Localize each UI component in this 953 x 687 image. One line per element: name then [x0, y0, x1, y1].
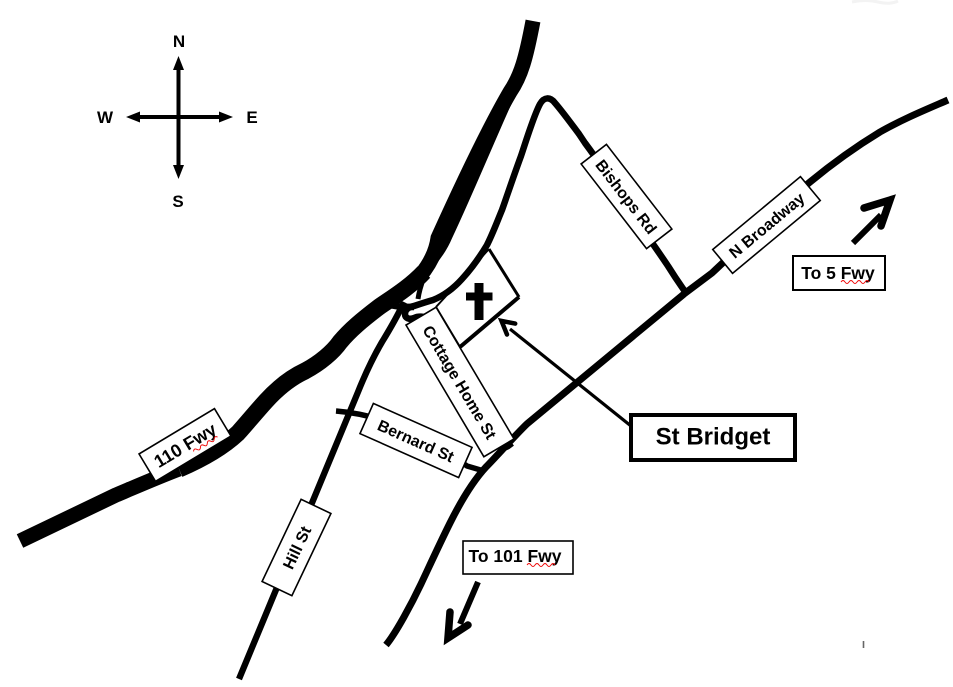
- svg-text:S: S: [172, 192, 183, 211]
- svg-text:St Bridget: St Bridget: [656, 424, 771, 451]
- svg-text:E: E: [246, 108, 257, 127]
- svg-text:W: W: [97, 108, 114, 127]
- svg-text:N: N: [173, 32, 185, 51]
- svg-text:To 5 Fwy: To 5 Fwy: [801, 263, 875, 283]
- svg-text:To 101 Fwy: To 101 Fwy: [468, 546, 561, 566]
